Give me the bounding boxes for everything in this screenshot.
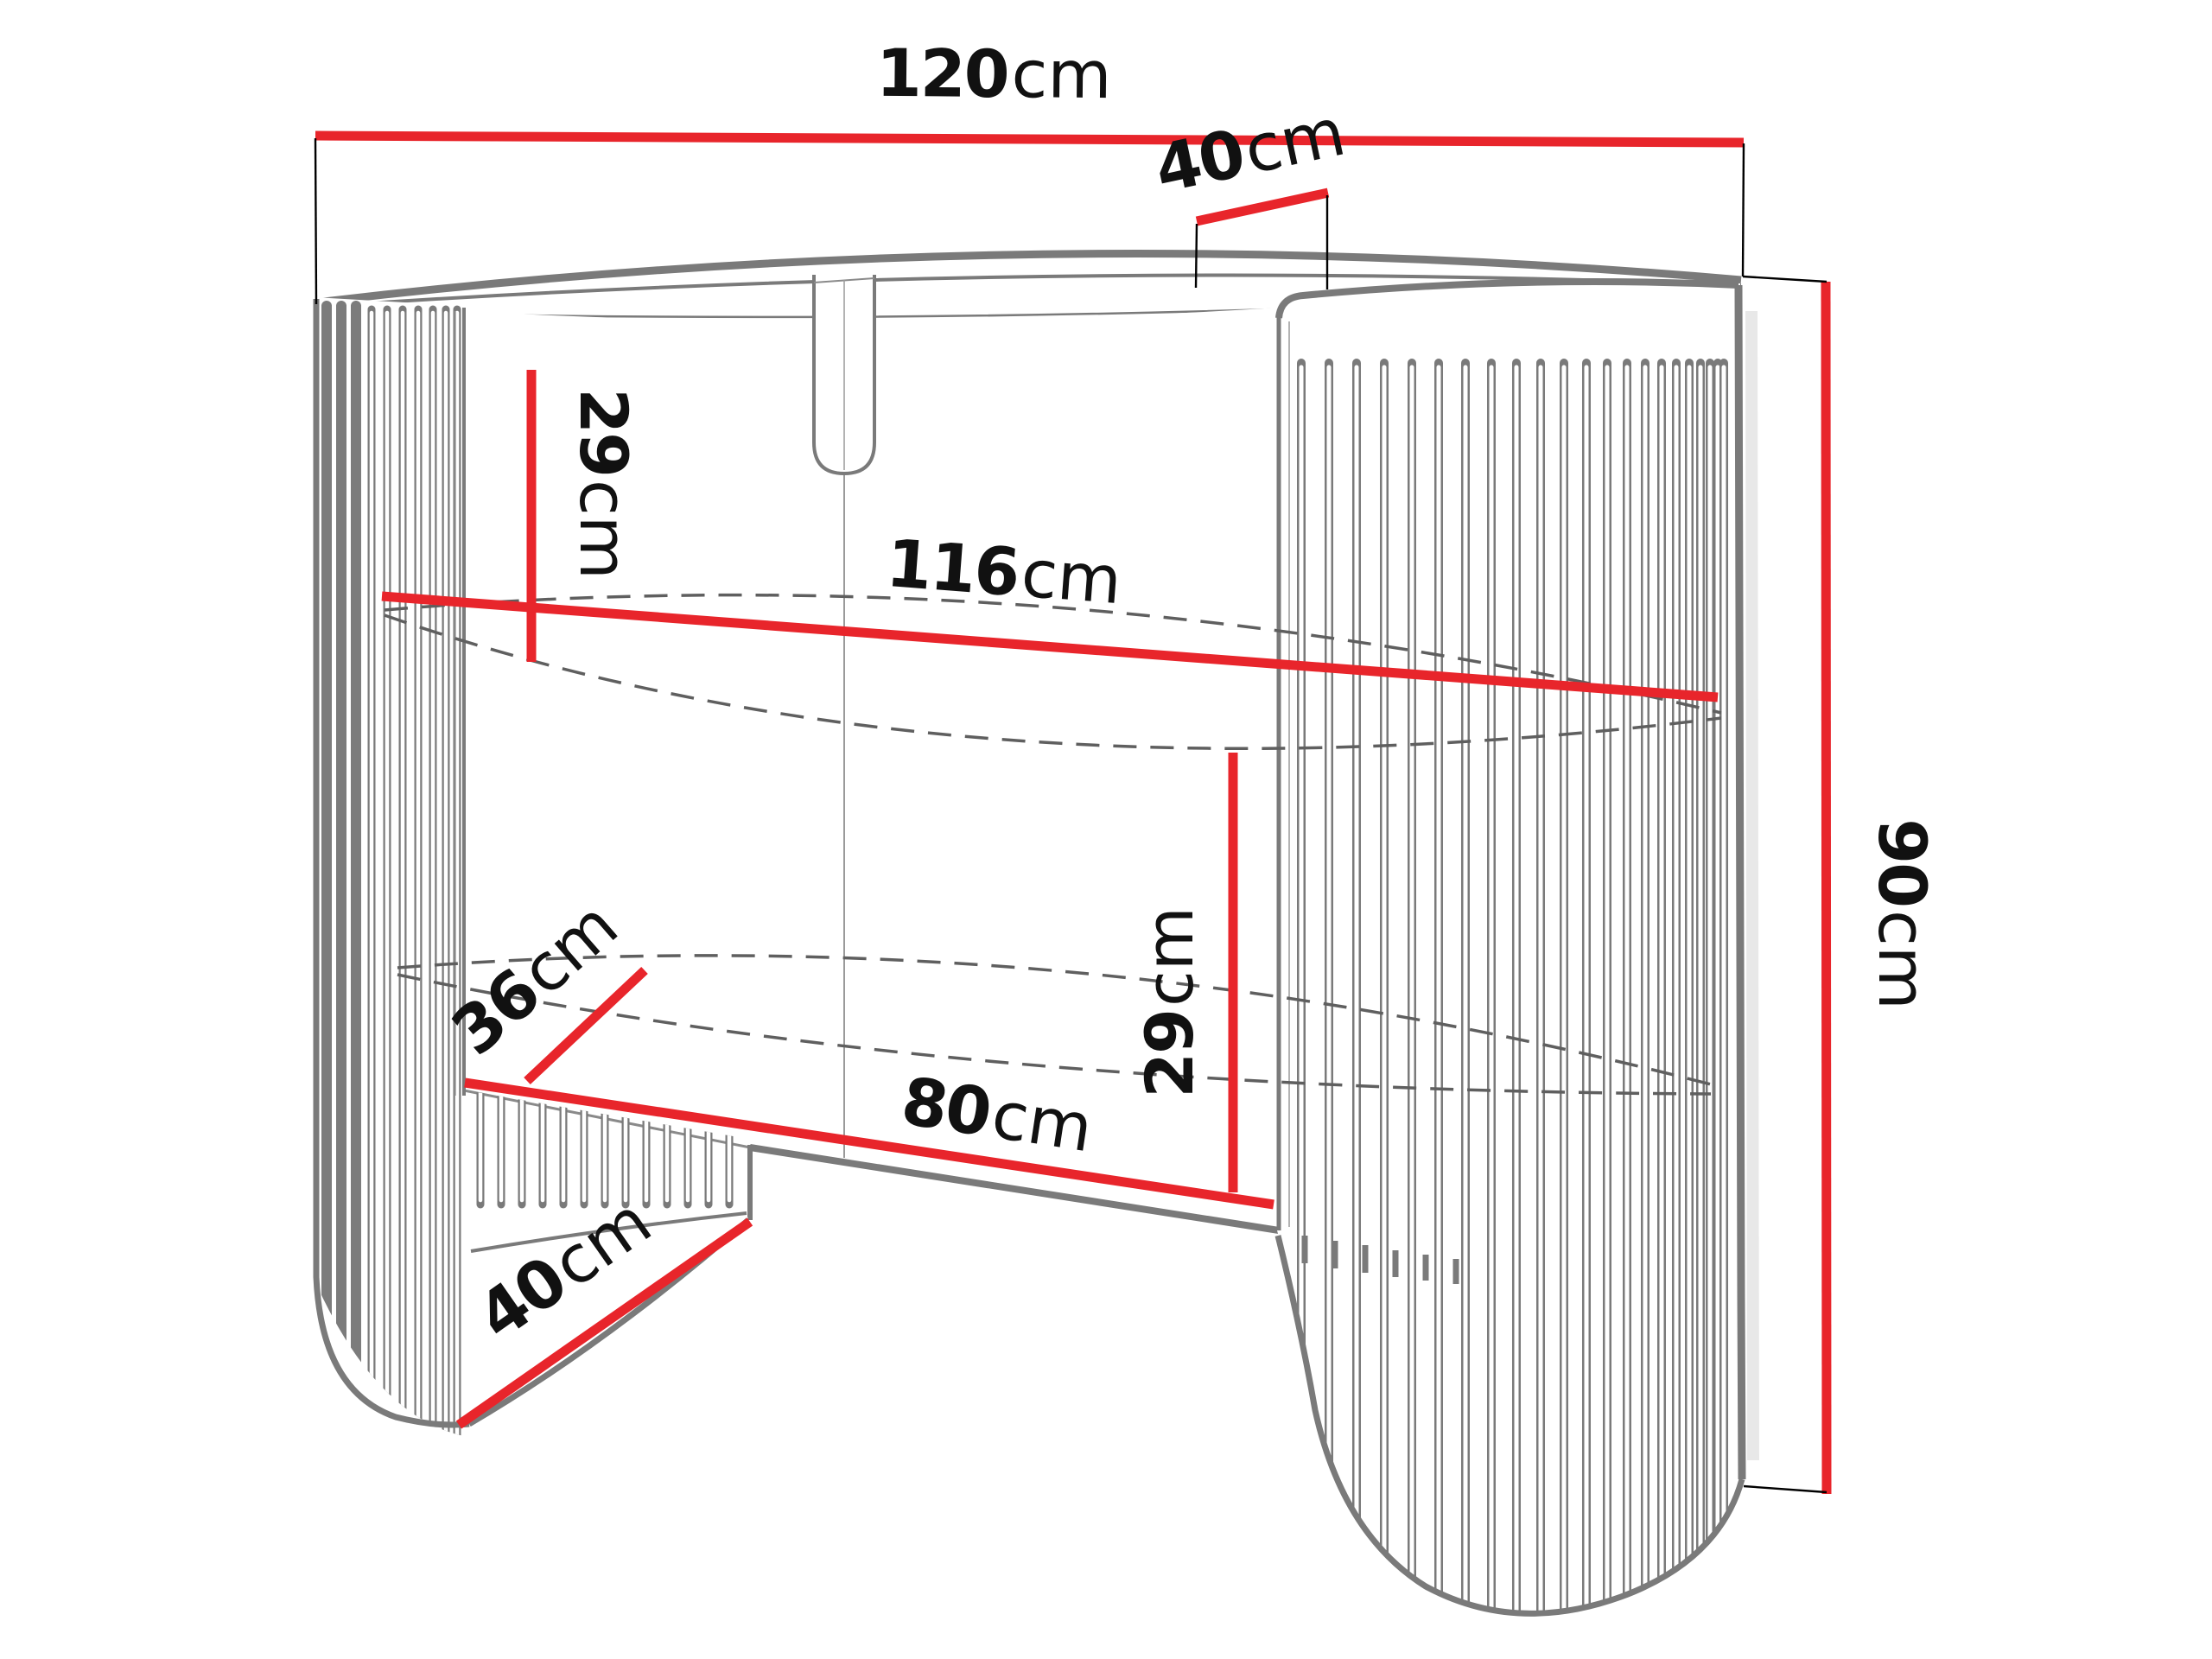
dim-label-overall-height: 90cm [1864,818,1941,1010]
dim-tick [1743,276,1827,282]
dim-line-120 [315,136,1744,143]
dim-tick [315,138,316,304]
dimension-overall-height: 90cm [1743,276,1941,1494]
right-column [1277,280,1753,1642]
diagram-canvas: 120cm 40cm 29cm 116cm 90cm 36cm 29cm 80c… [0,0,2212,1659]
dim-label-top-to-middle-shelf: 29cm [565,388,642,580]
dim-tick [1743,143,1744,276]
dimension-top-depth: 40cm [1148,93,1351,289]
dim-label-top-width: 120cm [876,35,1112,113]
dim-tick [1744,1486,1827,1492]
left-column [315,297,469,1469]
furniture-dimension-diagram: 120cm 40cm 29cm 116cm 90cm 36cm 29cm 80c… [0,0,2212,1659]
dim-label-middle-shelf-to-bottom: 29cm [1131,906,1208,1098]
dim-tick [1196,224,1197,288]
right-column-right-edge [1738,285,1742,1479]
right-edge-shadow [1751,311,1753,1460]
dim-line-90 [1826,282,1827,1494]
dim-line-40-top [1197,193,1328,221]
